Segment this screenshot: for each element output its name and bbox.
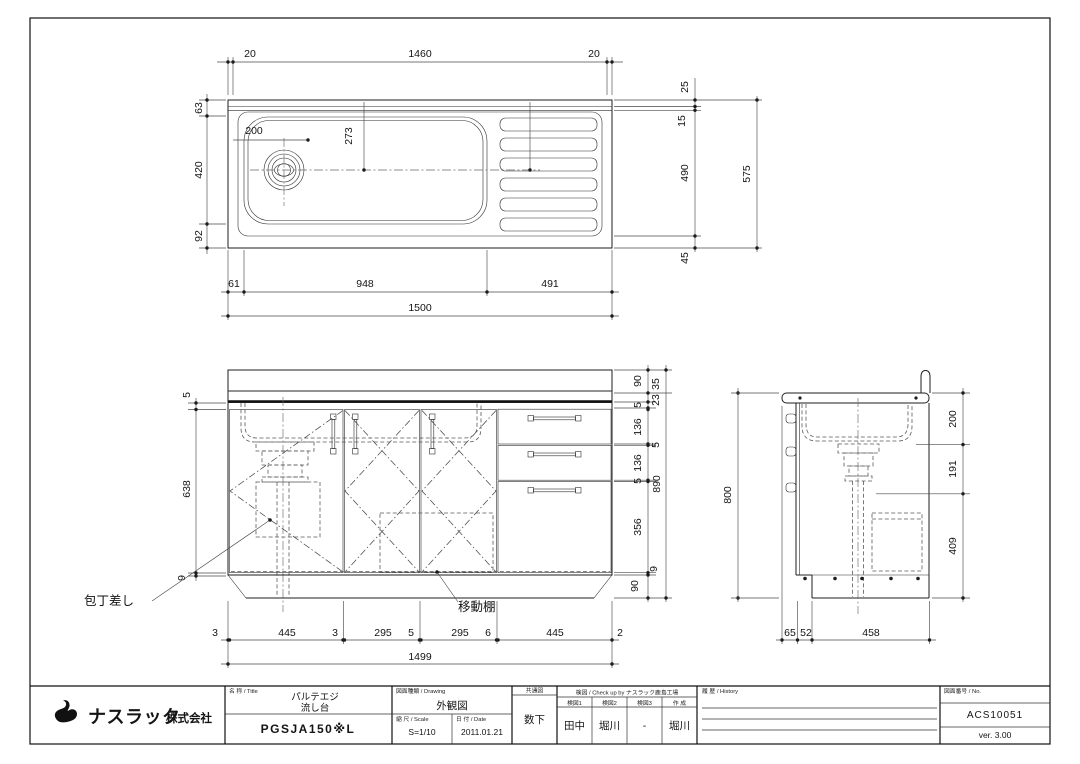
plan-dim-top-0: 20 [244, 48, 256, 60]
front-hidden-movable-shelf [380, 513, 493, 572]
plan-dim-left-1: 420 [193, 161, 205, 179]
front-dim-right-1: 35 [650, 378, 662, 390]
side-dim-right-1: 191 [947, 460, 959, 478]
front-dim-right-4: 136 [632, 418, 644, 436]
product-name-line1: パルテエジ [291, 692, 339, 703]
side-dim-bottom-2: 458 [862, 627, 880, 639]
side-hidden-shelf [872, 513, 922, 571]
front-dim-height-total: 800 [722, 486, 734, 504]
title-block: ナスラック 株式会社 名 称 / Title パルテエジ 流し台 PGSJA15… [30, 686, 1050, 744]
swan-logo-icon [55, 700, 77, 722]
plan-dim-right-3: 45 [679, 252, 691, 264]
plan-dims-bottom: 61 948 491 1500 [221, 250, 619, 320]
history-header: 履 歴 / History [702, 688, 738, 695]
front-dim-right-2: 23 [650, 394, 662, 406]
front-dim-bottom-2: 3 [332, 627, 338, 639]
dist-header: 共通図 [526, 687, 544, 695]
front-dim-bottom-6: 6 [485, 627, 491, 639]
front-door-3 [421, 410, 497, 573]
front-hidden-drain-1 [256, 442, 314, 451]
front-hidden-lines [231, 397, 610, 612]
front-dim-right-9: 9 [648, 566, 660, 572]
drawing-sheet: 20 1460 20 63 420 92 [0, 0, 1080, 764]
side-dim-bottom-1: 52 [800, 627, 812, 639]
check-col-3-value: 堀川 [669, 720, 690, 732]
front-door-swing-lines [230, 411, 496, 573]
plan-dim-bottom-1: 948 [356, 278, 374, 290]
plan-dims-top: 20 1460 20 [217, 48, 623, 95]
check-col-1-label: 検図2 [602, 699, 617, 707]
front-dim-bottom-7: 445 [546, 627, 564, 639]
plan-dim-bottom-total: 1500 [408, 302, 432, 314]
front-dims-bottom: 3 445 3 295 5 295 6 445 2 1499 [212, 601, 623, 668]
check-col-2-label: 検図3 [637, 699, 652, 707]
plan-view: 20 1460 20 63 420 92 [193, 48, 762, 320]
side-hinges [786, 414, 796, 492]
drawing-number: ACS10051 [967, 710, 1023, 721]
front-view: 包丁差し 移動棚 5 638 9 [84, 365, 779, 668]
plan-drainboard-slats [500, 118, 597, 231]
front-dims-right: 90 35 23 5 136 5 136 5 356 9 90 890 800 [614, 365, 779, 602]
side-dim-right-2: 409 [947, 537, 959, 555]
front-dim-bottom-1: 445 [278, 627, 296, 639]
plan-dim-left-2: 92 [193, 230, 205, 242]
company-suffix: 株式会社 [166, 711, 212, 725]
front-hidden-knife-holder [256, 482, 320, 537]
front-dim-right-7: 5 [632, 478, 644, 484]
side-backsplash [921, 371, 930, 394]
product-name-line2: 流し台 [301, 702, 330, 714]
front-dim-left-0: 5 [181, 392, 193, 398]
sheet-border [30, 18, 1050, 744]
front-labels: 包丁差し 移動棚 [84, 518, 496, 614]
check-col-0-label: 検図1 [567, 699, 582, 707]
scale-value: S=1/10 [408, 727, 435, 737]
side-screws [803, 577, 920, 581]
side-hidden-lines [802, 398, 922, 614]
plan-dim-drain-x: 200 [245, 125, 263, 137]
plan-dim-right-total: 575 [741, 165, 753, 183]
front-dim-bottom-8: 2 [617, 627, 623, 639]
side-dims-right: 200 191 409 [876, 388, 970, 602]
knife-holder-label: 包丁差し [84, 594, 134, 608]
side-hidden-drain [838, 444, 879, 453]
plan-dim-bottom-2: 491 [541, 278, 559, 290]
plan-dim-left-0: 63 [193, 102, 205, 114]
side-dim-right-0: 200 [947, 410, 959, 428]
front-dim-left-2: 9 [176, 575, 188, 581]
front-dim-left-1: 638 [181, 480, 193, 498]
name-header: 名 称 / Title [229, 687, 258, 695]
scale-header: 縮 尺 / Scale [396, 715, 429, 723]
side-hidden-sink-bowl [802, 404, 912, 441]
front-drawer-1 [498, 409, 611, 444]
date-value: 2011.01.21 [461, 727, 503, 737]
front-dim-right-5: 5 [650, 442, 662, 448]
plan-dim-drain-y: 273 [343, 127, 355, 145]
plan-dim-right-0: 25 [679, 81, 691, 93]
date-header: 日 付 / Date [456, 715, 486, 723]
front-dim-right-0: 90 [632, 375, 644, 387]
front-dim-bottom-total: 1499 [408, 651, 432, 663]
front-dim-right-8: 356 [632, 518, 644, 536]
plan-dim-top-1: 1460 [408, 48, 432, 60]
check-col-1-value: 堀川 [599, 720, 620, 732]
version: ver. 3.00 [979, 730, 1012, 740]
plan-top-opening [238, 112, 602, 236]
check-col-0-value: 田中 [564, 719, 585, 732]
drawing-type: 外観図 [436, 699, 468, 712]
front-dim-bottom-0: 3 [212, 627, 218, 639]
check-col-3-label: 作 成 [673, 699, 686, 707]
plan-dim-right-1: 15 [676, 115, 688, 127]
movable-shelf-label: 移動棚 [458, 599, 496, 614]
front-door-2 [345, 410, 420, 573]
dist-value: 数下 [524, 713, 545, 726]
model-number: PGSJA150※L [261, 722, 356, 736]
side-counter [782, 393, 929, 403]
front-hidden-sink-bowl [241, 403, 481, 442]
front-dim-bottom-4: 5 [408, 627, 414, 639]
plan-counter-outline [228, 100, 612, 248]
front-backsplash [228, 370, 612, 391]
plan-dim-top-2: 20 [588, 48, 600, 60]
drawing-header: 図面種類 / Drawing [396, 687, 445, 695]
front-dims-left: 5 638 9 [176, 392, 226, 581]
plan-dims-right: 25 15 490 45 575 [614, 78, 762, 264]
check-col-2-value: - [643, 720, 647, 732]
front-base [228, 575, 612, 598]
plan-dims-left: 63 420 92 [193, 94, 226, 254]
front-door-1 [230, 410, 344, 573]
side-dim-bottom-0: 65 [784, 627, 796, 639]
front-dim-right-10: 90 [629, 580, 641, 592]
front-dim-bottom-5: 295 [451, 627, 469, 639]
check-header: 検図 / Check up by ナスラック鹿島工場 [576, 689, 679, 697]
front-dim-right-6: 136 [632, 454, 644, 472]
front-dim-right-total: 890 [651, 475, 663, 493]
company-logo: ナスラック 株式会社 [55, 700, 213, 727]
front-drawer-3 [498, 482, 611, 573]
no-header: 図面番号 / No. [944, 688, 981, 695]
side-dims-bottom: 65 52 458 [776, 406, 936, 644]
side-view: 200 191 409 65 52 458 [776, 371, 970, 645]
front-drawer-2 [498, 445, 611, 480]
plan-dim-bottom-0: 61 [228, 278, 240, 290]
front-dim-right-3: 5 [632, 402, 644, 408]
front-dim-bottom-3: 295 [374, 627, 392, 639]
plan-dim-right-2: 490 [679, 164, 691, 182]
